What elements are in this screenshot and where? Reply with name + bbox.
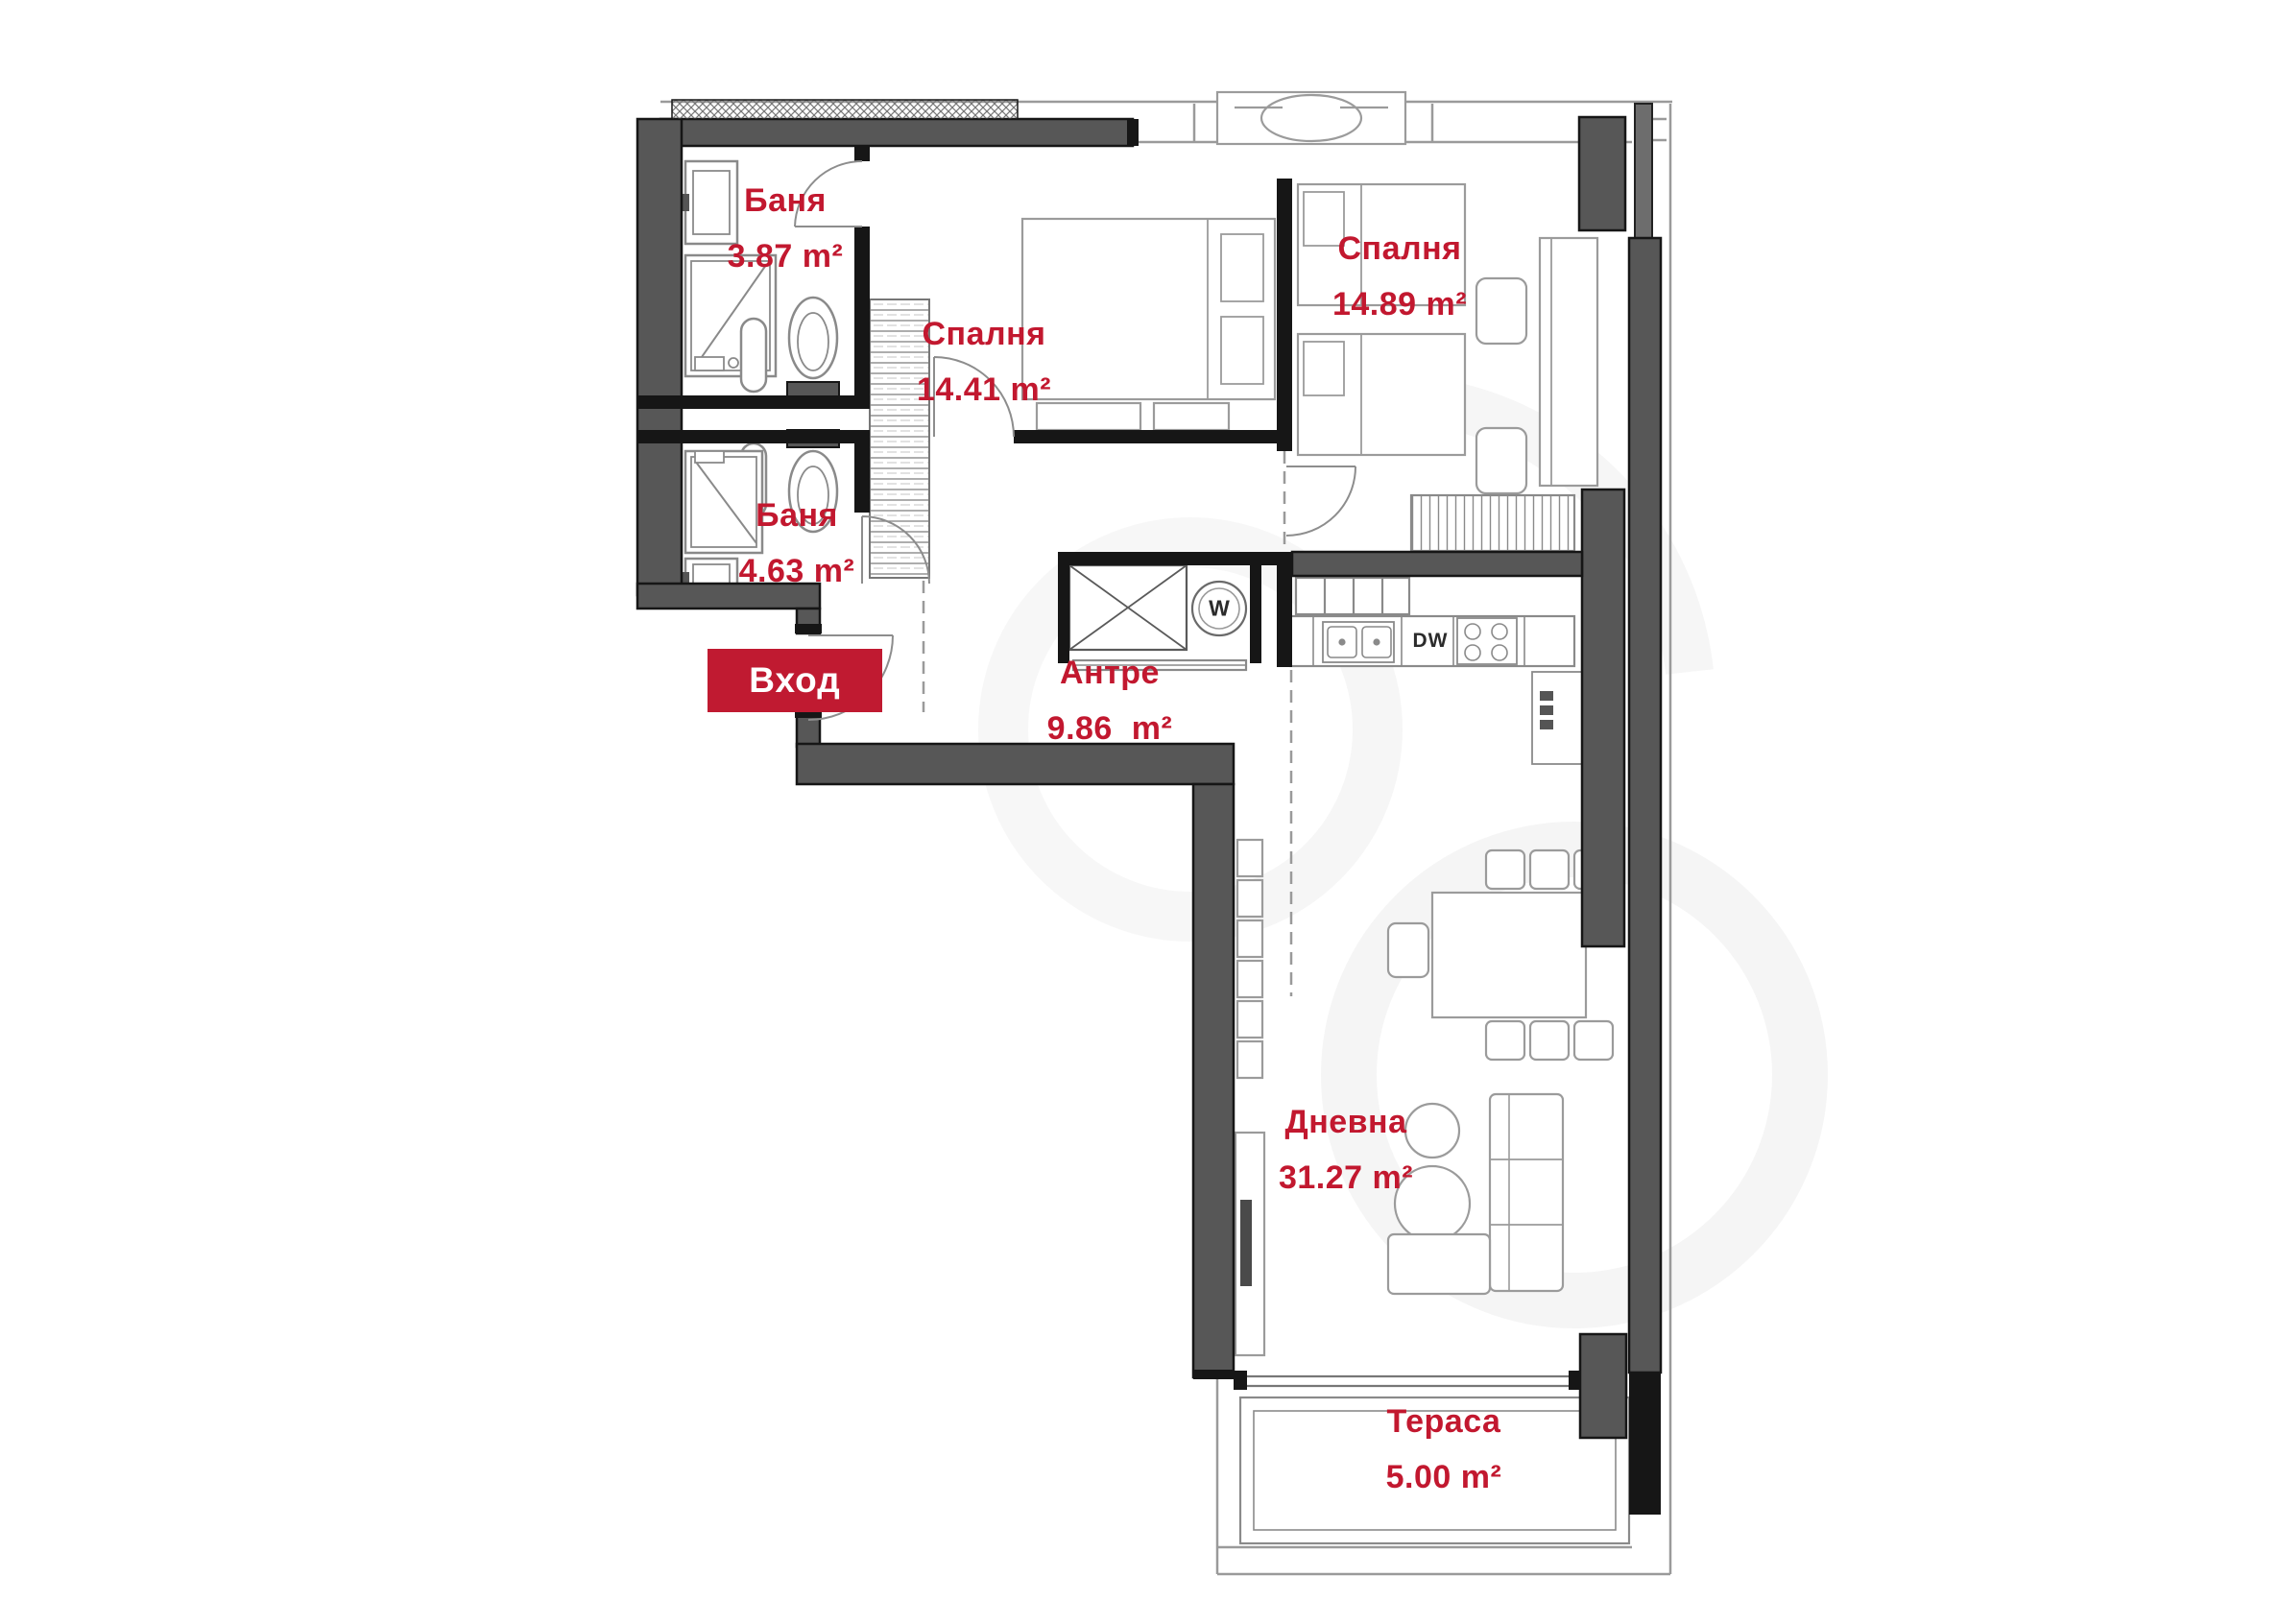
room-label-bedroom-1: Спалня 14.41 m² <box>917 306 1051 418</box>
balcony-door-jamb-left <box>1234 1371 1247 1390</box>
floorplan-page: Баня 3.87 m² Спалня 14.41 m² Спалня 14.8… <box>0 0 2279 1624</box>
dishwasher-label: DW <box>1413 630 1449 653</box>
washing-machine-label: W <box>1209 596 1230 622</box>
right-glazing-band <box>1635 104 1652 240</box>
terrace-side-wall <box>1629 1373 1661 1515</box>
floorplan-drawing <box>0 0 2279 1624</box>
entrance-badge: Вход <box>708 649 882 712</box>
wall-end-cap <box>1193 1370 1234 1379</box>
insulation-strip <box>672 100 1018 119</box>
room-label-bedroom-2: Спалня 14.89 m² <box>1332 221 1467 332</box>
room-label-hallway: Антре 9.86 m² <box>1047 645 1173 756</box>
bedroom-2-door <box>1286 466 1355 536</box>
room-label-terrace: Тераса 5.00 m² <box>1386 1394 1502 1505</box>
room-label-bathroom-1: Баня 3.87 m² <box>728 173 844 284</box>
room-label-living-room: Дневна 31.27 m² <box>1279 1094 1413 1206</box>
kitchen-counter <box>1290 578 1588 764</box>
room-label-bathroom-2: Баня 4.63 m² <box>739 488 855 599</box>
